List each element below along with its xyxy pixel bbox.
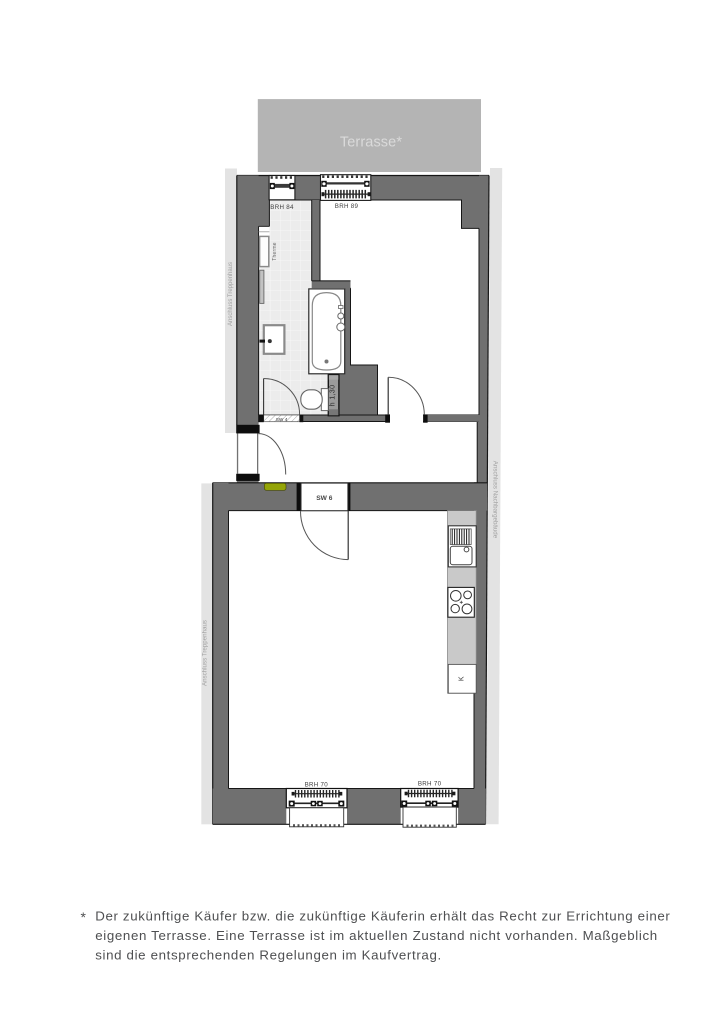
svg-text:BRH 70: BRH 70 (305, 781, 329, 788)
svg-text:SW 4: SW 4 (276, 417, 288, 423)
svg-text:K: K (459, 676, 466, 681)
svg-text:Anschluss Treppenhaus: Anschluss Treppenhaus (202, 620, 209, 686)
svg-text:Therme: Therme (272, 242, 278, 260)
svg-text:BRH 84: BRH 84 (270, 204, 294, 211)
svg-text:Anschluss Treppenhaus: Anschluss Treppenhaus (228, 262, 234, 326)
svg-text:BRH 70: BRH 70 (418, 780, 442, 787)
svg-text:eigenen Terrasse. Eine Terrass: eigenen Terrasse. Eine Terrasse ist im a… (95, 928, 658, 943)
svg-text:Der zukünftige Käufer bzw. die: Der zukünftige Käufer bzw. die zukünftig… (95, 909, 670, 924)
svg-text:Anschluss Nachbargebäude: Anschluss Nachbargebäude (492, 461, 499, 539)
svg-text:sind die entsprechenden Regelu: sind die entsprechenden Regelungen im Ka… (95, 947, 442, 962)
svg-text:*: * (81, 909, 87, 925)
svg-text:SW 6: SW 6 (316, 495, 332, 502)
svg-text:Terrasse*: Terrasse* (340, 135, 402, 151)
svg-text:BRH 89: BRH 89 (335, 203, 359, 210)
